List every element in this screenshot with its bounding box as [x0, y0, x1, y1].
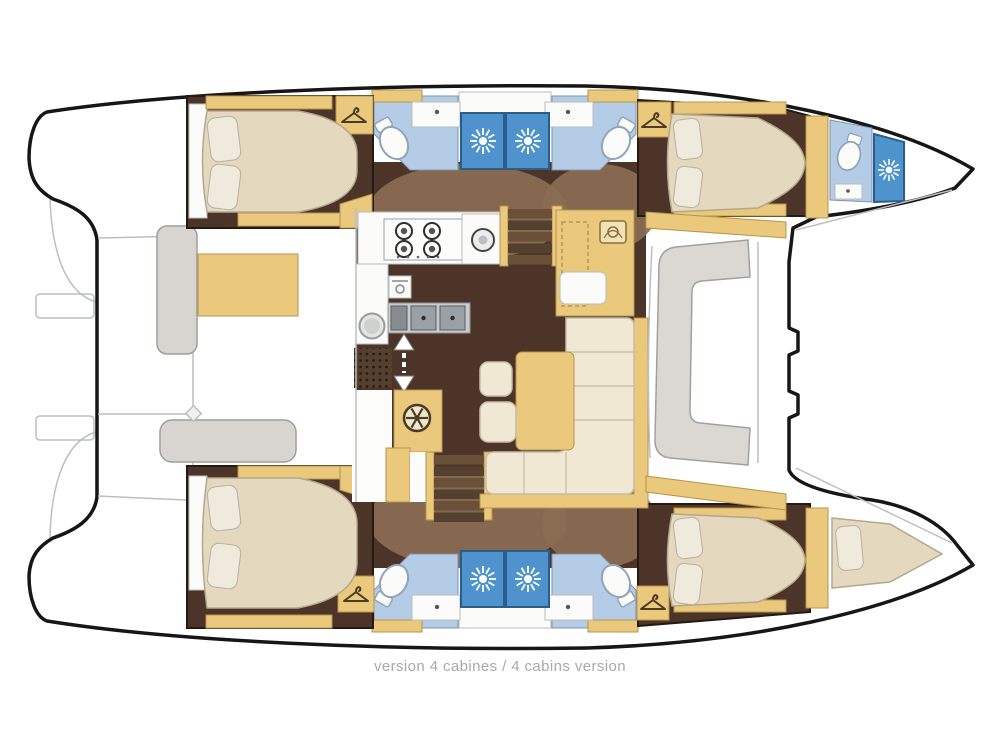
navigation-station	[556, 210, 634, 316]
pillow	[206, 163, 241, 210]
top-hull-aft-cabin	[187, 96, 373, 228]
single-burner-icon	[472, 229, 494, 251]
double-sink-icon	[388, 303, 470, 333]
pillow	[835, 525, 864, 571]
washing-machine-icon	[360, 314, 385, 339]
oven-icon	[389, 276, 411, 298]
caption: version 4 cabines / 4 cabins version	[0, 658, 1000, 675]
top-hull-bathrooms	[370, 90, 641, 170]
cockpit-seat	[157, 226, 197, 354]
top-hull-forward-cabin	[638, 100, 828, 218]
wash-basin	[545, 102, 593, 127]
pillow	[673, 517, 704, 560]
door-mat	[354, 348, 392, 388]
pillow	[673, 118, 704, 161]
bottom-hull-aft-cabin	[187, 466, 374, 628]
floor-plan-page: version 4 cabines / 4 cabins version	[0, 0, 1000, 750]
pillow	[673, 166, 704, 209]
cockpit-bench	[160, 420, 296, 462]
nav-instrument-icon	[600, 221, 626, 243]
dinette-table	[516, 352, 574, 450]
wash-basin	[412, 102, 460, 127]
pillow	[206, 115, 241, 162]
helm-wheel-icon	[404, 405, 430, 431]
companionway-stairs-top	[500, 206, 562, 266]
stool	[480, 362, 512, 396]
wardrobe	[637, 586, 669, 620]
cockpit-table	[198, 254, 298, 316]
stool	[480, 402, 516, 442]
pillow	[206, 542, 241, 589]
floor-plan	[0, 0, 1000, 750]
bottom-hull-forward-cabin	[637, 504, 828, 626]
pillow	[673, 563, 704, 606]
bottom-hull-bathrooms	[370, 551, 641, 632]
nav-seat	[560, 272, 606, 304]
pillow	[206, 484, 241, 531]
